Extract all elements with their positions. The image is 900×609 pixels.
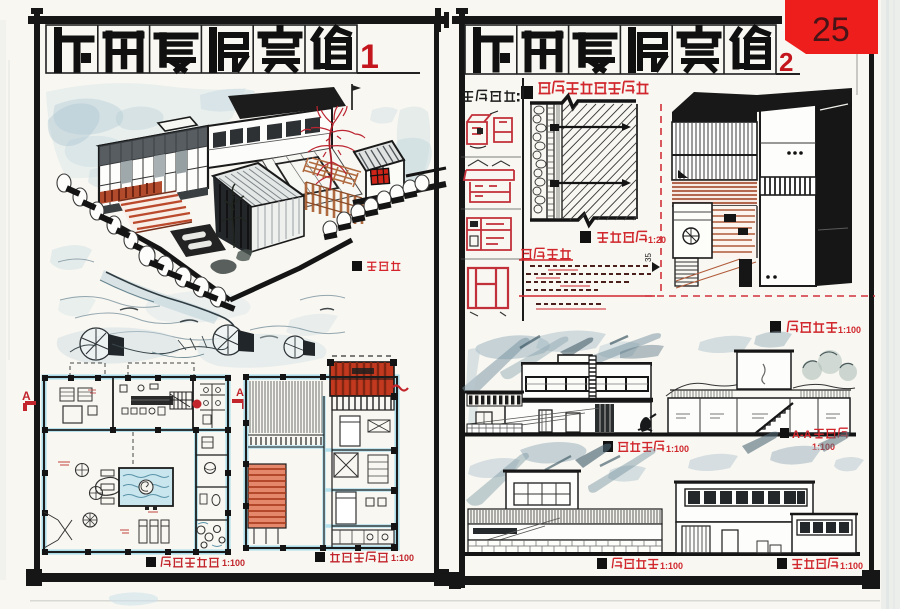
svg-text:1:100: 1:100 xyxy=(222,558,245,568)
svg-text:2: 2 xyxy=(779,47,793,77)
svg-text:1:100: 1:100 xyxy=(838,325,861,335)
svg-text:1:100: 1:100 xyxy=(660,561,683,571)
svg-text:25: 25 xyxy=(812,11,850,49)
svg-text:1: 1 xyxy=(360,38,379,76)
svg-text:1:100: 1:100 xyxy=(840,561,863,571)
svg-text:A: A xyxy=(236,387,244,399)
svg-text:1:100: 1:100 xyxy=(391,553,414,563)
svg-text:1:20: 1:20 xyxy=(648,235,666,245)
svg-text:A: A xyxy=(22,389,31,403)
svg-text:1:100: 1:100 xyxy=(666,444,689,454)
svg-text:35: 35 xyxy=(644,253,653,262)
svg-text:A-A: A-A xyxy=(792,429,812,441)
